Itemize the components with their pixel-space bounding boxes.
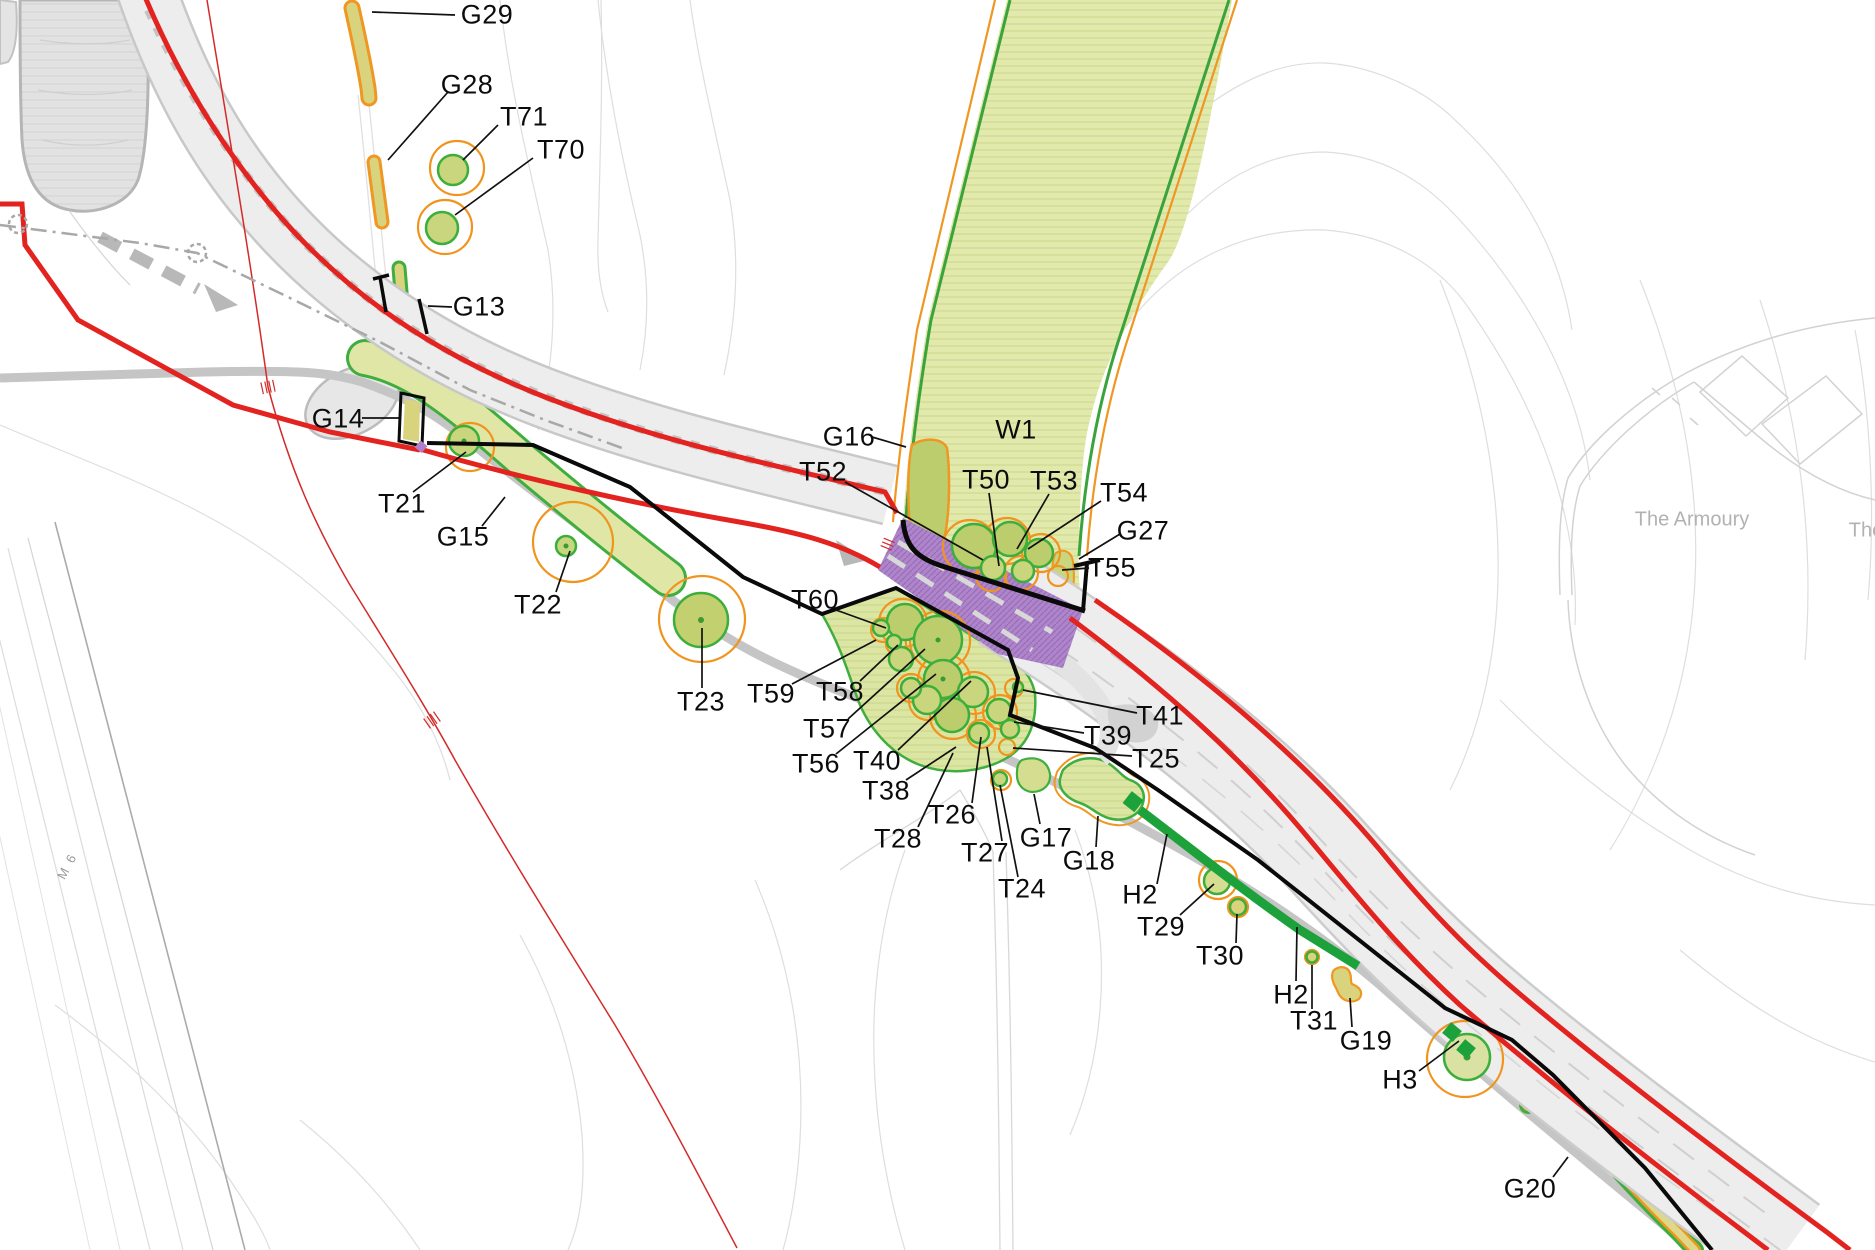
- armoury-place-label: The Armoury: [1635, 509, 1749, 532]
- label-T59: T59: [747, 679, 795, 710]
- group-G28-strip: [374, 162, 382, 222]
- label-T50: T50: [962, 465, 1010, 496]
- label-T38: T38: [862, 776, 910, 807]
- label-T23: T23: [677, 687, 725, 718]
- label-T39: T39: [1084, 721, 1132, 752]
- label-T28: T28: [874, 824, 922, 855]
- label-G18: G18: [1063, 846, 1116, 877]
- label-T30: T30: [1196, 941, 1244, 972]
- armoury-partial-label: The: [1849, 520, 1875, 543]
- label-G16: G16: [823, 422, 876, 453]
- site-plan-map: G29 G28 T71 T70 G13 G14 T21 G15 T22 T23 …: [0, 0, 1875, 1250]
- label-G29: G29: [461, 0, 514, 31]
- label-G19: G19: [1340, 1026, 1393, 1057]
- label-T55: T55: [1088, 553, 1136, 584]
- label-G28: G28: [441, 70, 494, 101]
- label-H3: H3: [1382, 1065, 1418, 1096]
- label-G14: G14: [312, 404, 365, 435]
- label-G20: G20: [1504, 1174, 1557, 1205]
- label-T21: T21: [378, 489, 426, 520]
- label-T58: T58: [816, 677, 864, 708]
- label-T57: T57: [803, 714, 851, 745]
- label-G27: G27: [1117, 516, 1170, 547]
- label-T71: T71: [500, 102, 548, 133]
- label-H2-a: H2: [1122, 880, 1158, 911]
- label-T40: T40: [853, 746, 901, 777]
- label-T22: T22: [514, 590, 562, 621]
- label-T53: T53: [1030, 466, 1078, 497]
- label-T24: T24: [998, 874, 1046, 905]
- label-T70: T70: [537, 135, 585, 166]
- label-T25: T25: [1132, 744, 1180, 775]
- label-T41: T41: [1136, 701, 1184, 732]
- site-plan-graphics: [0, 0, 1875, 1250]
- label-T56: T56: [792, 749, 840, 780]
- label-G15: G15: [437, 522, 490, 553]
- label-T60: T60: [791, 585, 839, 616]
- label-T31: T31: [1290, 1006, 1338, 1037]
- label-G13: G13: [453, 292, 506, 323]
- label-T54: T54: [1100, 478, 1148, 509]
- label-T27: T27: [961, 838, 1009, 869]
- label-T29: T29: [1137, 912, 1185, 943]
- label-W1: W1: [995, 415, 1037, 446]
- group-G17-blob: [1017, 758, 1050, 792]
- label-T26: T26: [928, 800, 976, 831]
- label-T52: T52: [799, 457, 847, 488]
- group-G14-fill: [403, 399, 420, 442]
